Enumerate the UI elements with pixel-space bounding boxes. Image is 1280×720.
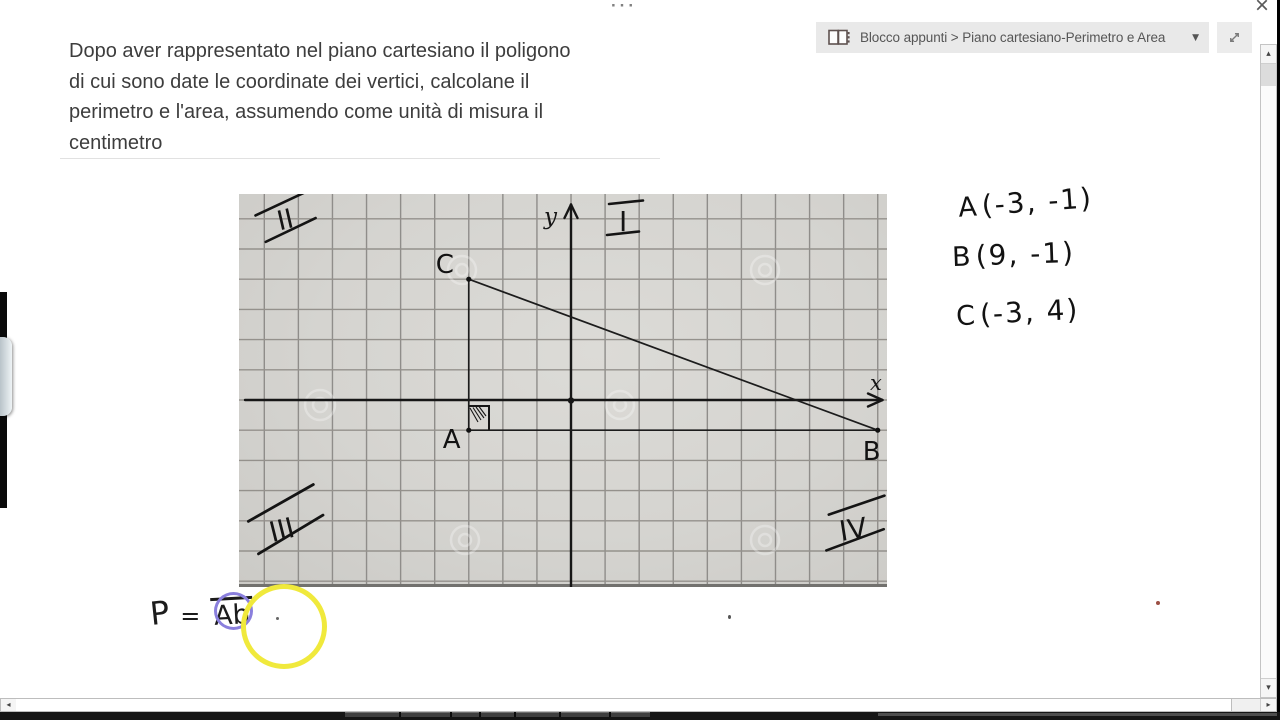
- close-icon[interactable]: ×: [1248, 0, 1276, 18]
- graph-paper-image: x y II I III: [239, 194, 887, 587]
- svg-text:III: III: [266, 511, 298, 549]
- bottom-bar-separator: [514, 712, 516, 717]
- expand-button[interactable]: [1217, 22, 1252, 53]
- ink-dot: [728, 615, 731, 619]
- vertical-scroll-thumb[interactable]: [1261, 64, 1276, 86]
- vertex-letter: C: [955, 300, 975, 332]
- yellow-annotation-circle: [241, 584, 327, 669]
- scroll-down-icon[interactable]: ▾: [1261, 678, 1276, 697]
- pen-tip-dot: [276, 617, 279, 620]
- chevron-down-icon[interactable]: ▼: [1192, 33, 1199, 43]
- vertex-dot: [466, 428, 471, 433]
- vertex-label: A: [443, 425, 461, 455]
- vertex-letter: A: [957, 191, 978, 223]
- vertical-scrollbar[interactable]: ▴ ▾: [1260, 44, 1277, 698]
- side-pull-tab[interactable]: [0, 337, 12, 416]
- resize-diagonal-icon: [1227, 30, 1242, 45]
- vertex-coords: (-3, 4): [979, 293, 1080, 331]
- scroll-right-icon[interactable]: ▸: [1260, 699, 1276, 711]
- right-angle-marker: [468, 406, 489, 430]
- coordinate-note-c: C (-3, 4): [955, 293, 1080, 332]
- onenote-page: ··· × Blocco appunti > Piano cartesiano-…: [0, 0, 1280, 720]
- bottom-bar-separator: [609, 712, 611, 717]
- vertex-dot: [466, 277, 471, 282]
- y-axis-label: y: [543, 204, 558, 230]
- scroll-up-icon[interactable]: ▴: [1261, 45, 1276, 64]
- formula-equals: =: [180, 602, 200, 630]
- bottom-bar-separator: [450, 712, 452, 717]
- formula-lhs: P: [148, 593, 171, 633]
- grid-layer: [239, 194, 887, 587]
- notebook-icon: [828, 29, 850, 46]
- svg-text:IV: IV: [837, 511, 869, 548]
- coordinate-note-b: B (9, -1): [951, 236, 1075, 273]
- vertex-coords: (9, -1): [975, 236, 1075, 272]
- bottom-bar-separator: [559, 712, 561, 717]
- vertex-letter: B: [952, 242, 972, 274]
- origin-dot: [568, 397, 574, 403]
- bottom-bar-segment: [878, 713, 1277, 716]
- bottom-bar-separator: [399, 712, 401, 717]
- quadrant-4-label: IV: [819, 496, 887, 551]
- breadcrumb[interactable]: Blocco appunti > Piano cartesiano-Perime…: [816, 22, 1209, 53]
- vertex-label: B: [863, 437, 881, 467]
- ink-dot: [1156, 601, 1160, 605]
- bottom-bar-separator: [479, 712, 481, 717]
- problem-statement: Dopo aver rappresentato nel piano cartes…: [69, 36, 693, 158]
- breadcrumb-path: Blocco appunti > Piano cartesiano-Perime…: [860, 30, 1182, 45]
- vertex-label: C: [436, 250, 454, 280]
- coordinate-note-a: A (-3, -1): [957, 181, 1094, 223]
- axes-layer: [245, 205, 883, 588]
- text-divider: [60, 158, 660, 159]
- bottom-bar-segment: [345, 712, 650, 717]
- quadrant-3-label: III: [243, 484, 328, 554]
- scroll-left-icon[interactable]: ◂: [1, 699, 17, 711]
- vertex-coords: (-3, -1): [981, 181, 1095, 222]
- vertex-dot: [875, 428, 880, 433]
- more-options-button[interactable]: ···: [600, 0, 648, 16]
- horizontal-scrollbar[interactable]: ◂ ▸: [0, 698, 1277, 712]
- x-axis-label: x: [870, 371, 882, 395]
- horizontal-scroll-thumb[interactable]: [16, 699, 1232, 711]
